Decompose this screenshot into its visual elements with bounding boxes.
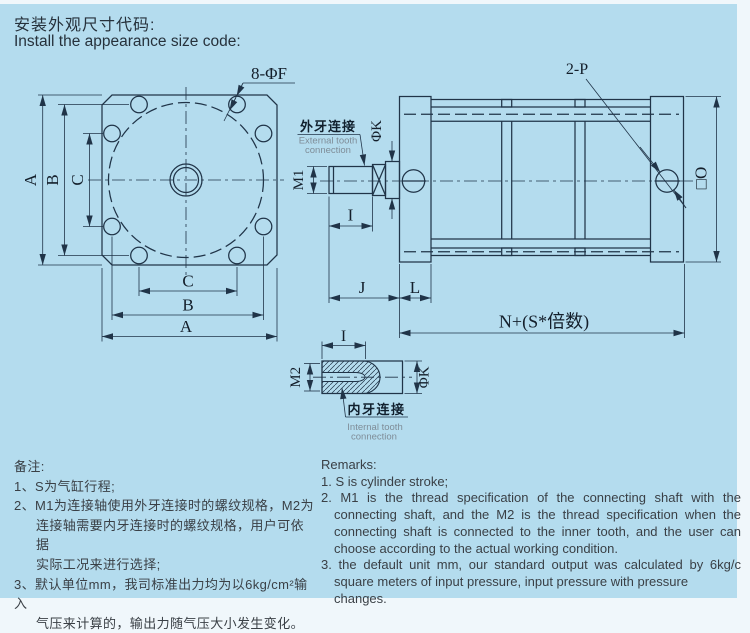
dim-a-left: A xyxy=(21,173,40,186)
remarks-zh-line: 2、M1为连接轴使用外牙连接时的螺纹规格，M2为 xyxy=(14,496,316,516)
hole-callout: 8-ΦF xyxy=(251,64,287,83)
dim-square-o: □O xyxy=(692,167,711,190)
dim-c-left: C xyxy=(68,174,87,185)
remarks-zh-heading: 备注: xyxy=(14,457,316,477)
remarks-en-heading: Remarks: xyxy=(321,457,741,474)
remarks-en-line: choose according to the actual working c… xyxy=(321,541,741,558)
remarks-zh-line: 气压来计算的，输出力随气压大小发生变化。 xyxy=(14,614,316,633)
remarks-en-line: 3. the default unit mm, our standard out… xyxy=(321,557,741,574)
remarks-zh-line: 1、S为气缸行程; xyxy=(14,477,316,497)
internal-tooth-label-en2: connection xyxy=(351,432,397,443)
remarks-zh-block: 备注: 1、S为气缸行程; 2、M1为连接轴使用外牙连接时的螺纹规格，M2为 连… xyxy=(14,457,316,633)
dim-phik-side: ΦK xyxy=(369,120,385,142)
side-view: 外牙连接 External tooth connection M1 ΦK I J… xyxy=(291,61,721,338)
dim-m1: M1 xyxy=(291,170,307,191)
dim-a-bottom: A xyxy=(180,317,193,336)
dim-b-left: B xyxy=(43,174,62,185)
dim-c-bottom: C xyxy=(182,272,193,291)
dim-phik-detail: ΦK xyxy=(417,366,433,388)
dim-i-detail: I xyxy=(341,328,346,345)
remarks-zh-line: 3、默认单位mm，我司标准出力均为以6kg/cm²输入 xyxy=(14,575,316,614)
dim-m2: M2 xyxy=(288,367,304,388)
remarks-zh-line: 连接轴需要内牙连接时的螺纹规格，用户可依据 xyxy=(14,516,316,555)
remarks-en-line: connecting shaft, and the M2 is the thre… xyxy=(321,507,741,524)
front-view: A B C C B A 8-ΦF xyxy=(21,64,295,342)
dim-i-side: I xyxy=(348,206,354,225)
port-callout: 2-P xyxy=(566,61,588,78)
remarks-en-line: 1. S is cylinder stroke; xyxy=(321,474,741,491)
remarks-en-block: Remarks: 1. S is cylinder stroke; 2. M1 … xyxy=(321,457,741,607)
detail-view: M2 I ΦK 内牙连接 Internal tooth connection xyxy=(288,328,433,443)
remarks-en-line: square meters of input pressure, input p… xyxy=(321,574,741,607)
dim-l: L xyxy=(410,278,420,297)
dim-b-bottom: B xyxy=(182,296,193,315)
external-tooth-label-en2: connection xyxy=(305,145,351,156)
internal-tooth-label-zh: 内牙连接 xyxy=(347,402,405,417)
external-tooth-label-zh: 外牙连接 xyxy=(299,119,356,134)
rod-assembly xyxy=(329,162,400,199)
remarks-en-line: 2. M1 is the thread specification of the… xyxy=(321,490,741,507)
remarks-zh-line: 实际工况来进行选择; xyxy=(14,555,316,575)
remarks-en-line: connecting shaft is connected to the inn… xyxy=(321,524,741,541)
dim-n-stroke: N+(S*倍数) xyxy=(499,312,589,333)
dim-j: J xyxy=(359,278,366,297)
